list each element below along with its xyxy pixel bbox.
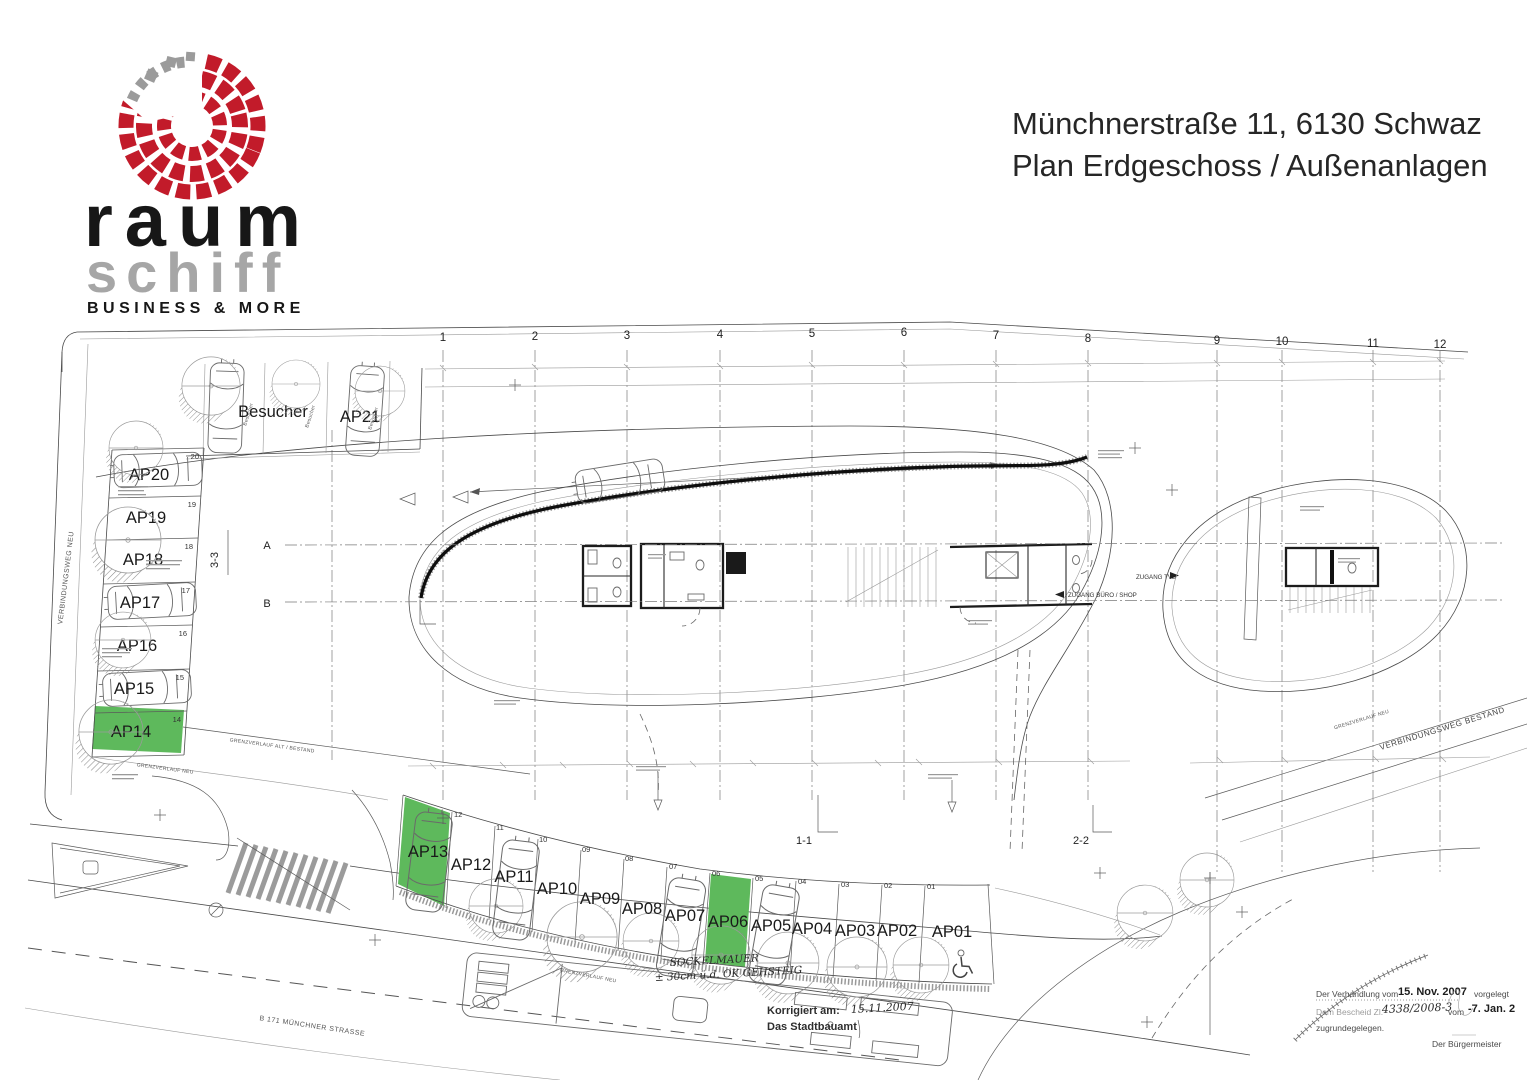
grid-number: 7: [993, 330, 999, 342]
stamp-line1-date: 15. Nov. 2007: [1398, 986, 1467, 998]
stamp-line4: Der Bürgermeister: [1432, 1039, 1502, 1049]
stall-number: 16: [179, 629, 187, 638]
section-3-3-label: 3-3: [209, 552, 221, 568]
traffic-island: [52, 843, 188, 898]
grid-number: 10: [1276, 336, 1289, 348]
grid-number: 4: [717, 329, 724, 341]
stall-label: AP11: [494, 868, 533, 886]
stamp-line2-mid: vom: [1448, 1007, 1464, 1017]
stall-number: 17: [182, 586, 190, 595]
entrance-labels: ZUGANG BÜRO / SHOP ZUGANG TVB: [1055, 572, 1179, 599]
stall-label: AP03: [835, 922, 875, 940]
pedestrian-crossing: [228, 838, 350, 913]
section-2-2-label: 2-2: [1073, 835, 1089, 847]
stall-label: AP07: [665, 907, 705, 925]
stall-number: 09: [582, 845, 590, 854]
street-labels: VERBINDUNGSWEG NEU VERBINDUNGSWEG BESTAN…: [57, 531, 1506, 1038]
grid-number: 6: [901, 327, 907, 339]
stall-number: 05: [755, 874, 763, 883]
stall-label: AP04: [792, 920, 832, 938]
zugang-buero-label: ZUGANG BÜRO / SHOP: [1068, 592, 1137, 599]
grid-number: 2: [532, 331, 538, 343]
korrigiert-label: Korrigiert am:: [767, 1005, 840, 1017]
stall-label: AP17: [120, 594, 160, 612]
grid-number: 12: [1434, 339, 1447, 351]
grid-axes: 1 2 3 4 5 6 7 8 9 10 11 12: [332, 327, 1446, 872]
section-a-label: A: [263, 540, 271, 552]
building-rooms: [583, 544, 1092, 626]
stall-number: 10: [539, 835, 547, 844]
b171-street-label: B 171 MÜNCHNER STRASSE: [259, 1014, 366, 1038]
stall-number: 20: [191, 452, 199, 461]
stall-number: 03: [841, 880, 849, 889]
grid-number: 3: [624, 330, 630, 342]
site-boundaries: [45, 322, 1527, 842]
wheelchair-icon: [953, 950, 972, 977]
stall-number: 07: [669, 862, 677, 871]
main-building: ZUGANG BÜRO / SHOP ZUGANG TVB: [409, 452, 1179, 705]
grid-number: 8: [1085, 333, 1091, 345]
stall-label: AP05: [751, 917, 791, 935]
stall-number: 08: [625, 854, 633, 863]
stadtbauamt-label: Das Stadtbauamt: [767, 1021, 857, 1033]
stall-number: 02: [884, 881, 892, 890]
grenzverlauf-neu-label: GRENZVERLAUF NEU: [136, 762, 194, 775]
grenzverlauf-alt-label: GRENZVERLAUF ALT / BESTAND: [229, 737, 315, 754]
stamp-line1-pre: Der Verhandlung vom: [1316, 989, 1398, 999]
logo-word-schiff: schiff: [86, 241, 289, 304]
stall-label: AP08: [622, 900, 662, 918]
stall-label: AP15: [114, 680, 154, 698]
stall-label: AP06: [708, 913, 748, 931]
stamp-line2-date: -7. Jan. 2: [1468, 1003, 1515, 1015]
page-title-plan: Plan Erdgeschoss / Außenanlagen: [1012, 148, 1488, 183]
left-parking-column: AP20 AP19 AP18 AP17 AP16 AP15 AP14 20 19…: [92, 448, 204, 757]
grid-number: 11: [1367, 338, 1379, 350]
car-plan-icon: [570, 458, 666, 505]
stall-number: 11: [496, 823, 504, 832]
stall-label: AP12: [451, 856, 491, 874]
survey-crosses: [154, 379, 1248, 1028]
stamp-line2-number: 4338/2008-3: [1381, 1001, 1453, 1016]
approval-stamp: Der Verhandlung vom 15. Nov. 2007 vorgel…: [1316, 986, 1515, 1049]
micro-annotations: [102, 450, 1360, 779]
stamp-line3: zugrundegelegen.: [1316, 1023, 1384, 1033]
stall-number: 01: [927, 882, 935, 891]
secondary-building: [1163, 480, 1467, 692]
stall-label: AP13: [408, 843, 448, 861]
stall-number: 14: [173, 715, 181, 724]
logo-tagline: BUSINESS & MORE: [87, 300, 305, 317]
stall-label: AP02: [877, 922, 917, 940]
grenzverlauf-neu-label: GRENZVERLAUF NEU: [1333, 709, 1390, 732]
drive-loop: [96, 426, 1112, 852]
stall-label: AP01: [932, 923, 972, 941]
stamp-line1-post: vorgelegt: [1474, 989, 1510, 999]
grid-number: 9: [1214, 335, 1220, 347]
section-1-1-label: 1-1: [796, 835, 812, 847]
scanned-site-plan: raum schiff BUSINESS & MORE Münchnerstra…: [0, 0, 1527, 1080]
stall-number: 12: [454, 810, 462, 819]
verbindungsweg-neu-label: VERBINDUNGSWEG NEU: [57, 531, 75, 625]
stall-label: AP10: [537, 880, 577, 898]
page-title-address: Münchnerstraße 11, 6130 Schwaz: [1012, 106, 1482, 141]
stall-number: 19: [188, 500, 196, 509]
grid-number: 1: [440, 332, 446, 344]
header: raum schiff BUSINESS & MORE Münchnerstra…: [84, 40, 1488, 317]
verbindungsweg-bestand-label: VERBINDUNGSWEG BESTAND: [1379, 705, 1506, 752]
section-b-label: B: [263, 598, 270, 610]
stall-number: 04: [798, 877, 806, 886]
stall-number: 18: [185, 542, 193, 551]
stall-label: AP09: [580, 890, 620, 908]
grid-number: 5: [809, 328, 815, 340]
section-marks: A B 1-1 2-2 3-3: [209, 530, 1505, 847]
stall-number: 06: [712, 869, 720, 878]
stamp-line2-pre: Dem Bescheid Zl.: [1316, 1007, 1383, 1017]
stall-number: 15: [176, 673, 184, 682]
